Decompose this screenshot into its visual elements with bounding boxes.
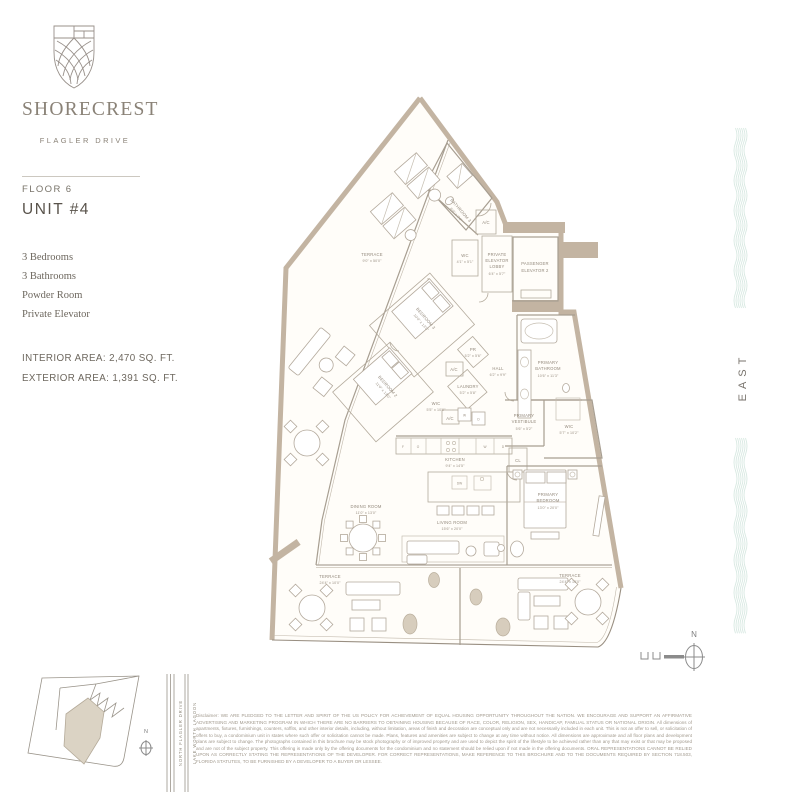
room-label: DINING ROOM xyxy=(350,504,381,509)
room-label: PASSENGER xyxy=(521,261,549,266)
room-dims: 4'1" x 5'1" xyxy=(457,260,474,264)
room-dims: 24'4" x 10'0" xyxy=(559,580,581,584)
room-dims: 13'0" x 20'0" xyxy=(537,506,559,510)
room-label: LAUNDRY xyxy=(457,384,478,389)
room-label: LIVING ROOM xyxy=(437,520,467,525)
appliance-label: F xyxy=(402,445,404,449)
compass-n-label: N xyxy=(691,630,697,639)
room-dims: 5'6" x 5'2" xyxy=(516,427,533,431)
room-label: VESTIBULE xyxy=(512,419,537,424)
compass-rose-icon: N xyxy=(683,630,705,671)
room-label: HALL xyxy=(492,366,504,371)
room-label: TERRACE xyxy=(559,573,580,578)
room-label: A/C xyxy=(450,367,458,372)
site-key-plan: N NORTH FLAGLER DRIVE LAKE WORTH LAGOON xyxy=(28,674,197,792)
scale-bar-icon xyxy=(641,652,684,659)
room-dims: 5'2" x 5'6" xyxy=(465,354,482,358)
plan-canvas: EAST xyxy=(0,0,800,800)
room-label: PRIMARY xyxy=(538,492,558,497)
appliance-label: DW xyxy=(457,482,462,486)
room-label: PR xyxy=(470,347,476,352)
room-label: A/C xyxy=(446,416,454,421)
room-label: TERRACE xyxy=(361,252,382,257)
floor-plan: TERRACE 9'0" x 50'0" BATHROOM 3 6'0" x 7… xyxy=(269,98,621,647)
room-label: KITCHEN xyxy=(445,457,465,462)
brochure-page: SHORECREST FLAGLER DRIVE FLOOR 6 UNIT #4… xyxy=(0,0,800,800)
room-label: WIC xyxy=(565,424,574,429)
room-label: ELEVATOR 2 xyxy=(521,268,549,273)
room-dims: 10'6" x 11'3" xyxy=(538,374,559,378)
room-dims: 5'7" x 10'2" xyxy=(560,431,580,435)
room-dims: 9'0" x 50'0" xyxy=(363,259,383,263)
room-label: BEDROOM xyxy=(536,498,559,503)
appliance-label: W xyxy=(483,445,486,449)
room-dims: 5'5" x 10'0" xyxy=(427,408,447,412)
room-dims: 5'2" x 5'8" xyxy=(460,391,477,395)
street-label: NORTH FLAGLER DRIVE xyxy=(178,700,183,766)
room-label: LOBBY xyxy=(490,264,505,269)
room-label: BATHROOM xyxy=(535,366,561,371)
room-dims: 9'4" x 14'5" xyxy=(446,464,466,468)
room-dims: 11'0" x 13'0" xyxy=(356,511,377,515)
room-label: A/C xyxy=(482,220,490,225)
room-label: WIC xyxy=(432,401,441,406)
room-dims: 15'6" x 20'0" xyxy=(441,527,463,531)
appliance-label: W xyxy=(463,414,466,418)
room-dims: 6'4" x 5'7" xyxy=(489,272,506,276)
room-dims: 24'4" x 10'0" xyxy=(319,581,341,585)
siteplan-n-label: N xyxy=(144,729,148,735)
room-label: CL xyxy=(515,458,521,463)
room-label: WC xyxy=(461,253,468,258)
room-label: PRIVATE xyxy=(488,252,507,257)
dining-table xyxy=(341,516,386,561)
room-label: TERRACE xyxy=(319,574,340,579)
room-label: PRIMARY xyxy=(514,413,534,418)
legal-disclaimer: Disclaimer: WE ARE PLEDGED TO THE LETTER… xyxy=(196,713,692,765)
room-dims: 6'2" x 9'9" xyxy=(490,373,507,377)
east-direction-label: EAST xyxy=(737,353,749,402)
room-label: PRIMARY xyxy=(538,360,558,365)
room-label: ELEVATOR xyxy=(485,258,508,263)
